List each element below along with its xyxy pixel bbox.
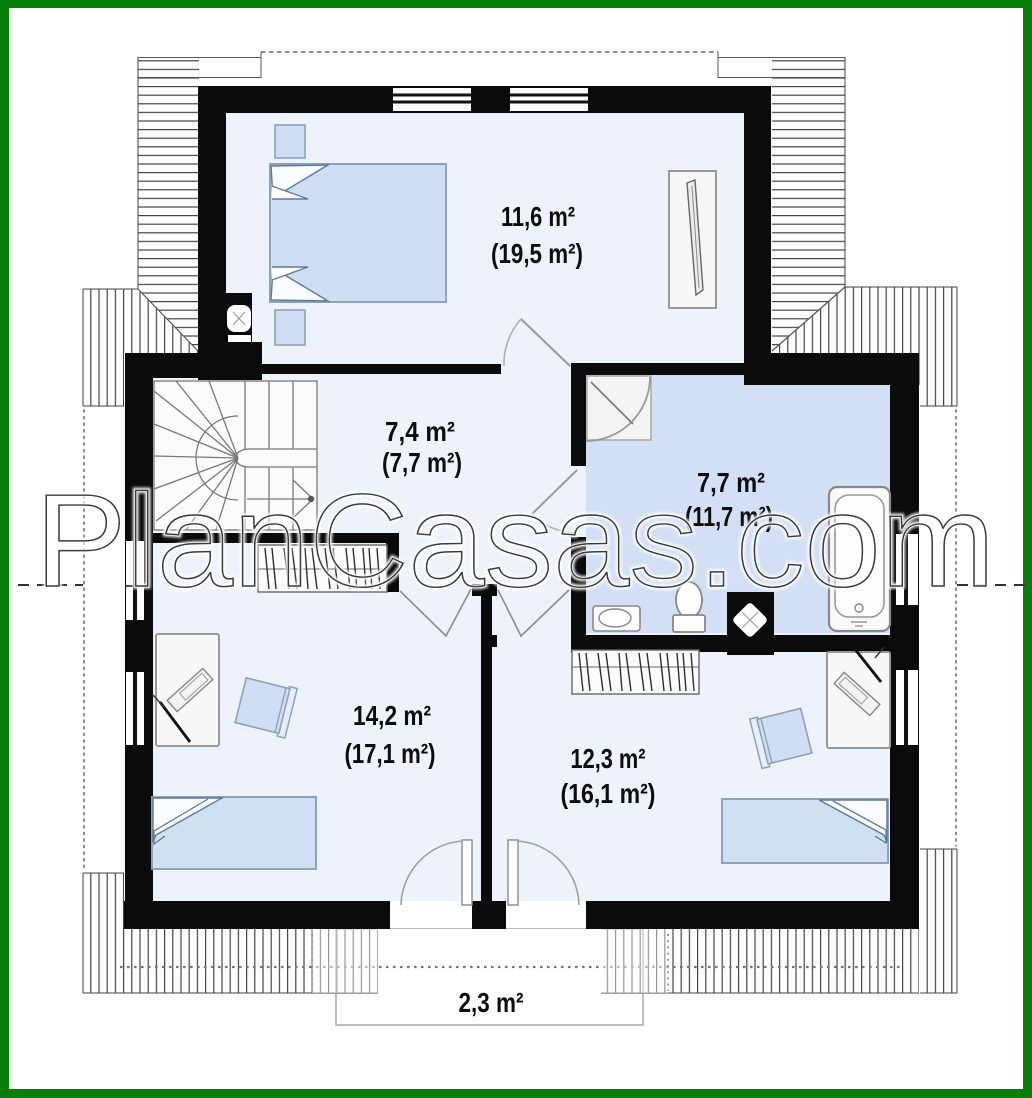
svg-text:2,3 m²: 2,3 m² bbox=[459, 987, 524, 1018]
svg-text:(16,1 m²): (16,1 m²) bbox=[561, 778, 656, 809]
svg-text:14,2 m²: 14,2 m² bbox=[353, 700, 431, 731]
svg-text:(19,5 m²): (19,5 m²) bbox=[491, 238, 583, 269]
svg-text:11,6 m²: 11,6 m² bbox=[501, 201, 575, 232]
svg-text:12,3 m²: 12,3 m² bbox=[571, 743, 646, 774]
svg-text:PlanCasas.com: PlanCasas.com bbox=[35, 467, 995, 614]
svg-text:7,4 m²: 7,4 m² bbox=[385, 416, 455, 447]
svg-text:(17,1 m²): (17,1 m²) bbox=[345, 738, 436, 769]
